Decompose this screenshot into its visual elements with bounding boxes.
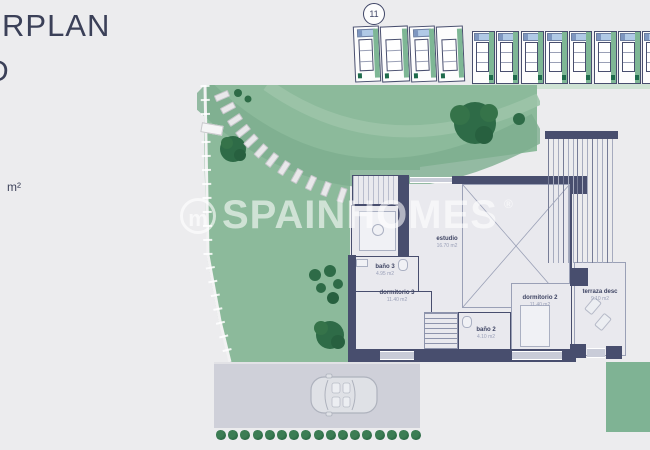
hedge-bush: [350, 430, 360, 440]
hedge-bush: [277, 430, 287, 440]
hedge-bush: [375, 430, 385, 440]
room-label-bano2: baño 2 4.10 m2: [466, 327, 506, 340]
terrace-pillar-br: [606, 346, 622, 359]
hedge-bush: [265, 430, 275, 440]
hedge-bush: [216, 430, 226, 440]
room-label-estudio: estudio 16.70 m2: [425, 236, 469, 249]
pergola-slat: [553, 139, 554, 263]
site-plot: [521, 31, 544, 84]
wall-left: [348, 255, 356, 362]
tree-left: [220, 136, 246, 162]
hedge-bush: [411, 430, 421, 440]
pergola-slat: [592, 139, 593, 263]
pergola-beam: [545, 131, 618, 139]
window-bottom-left: [380, 351, 414, 360]
hedge-bush: [301, 430, 311, 440]
hedge-bush: [338, 430, 348, 440]
covered-terrace-slats: [352, 175, 399, 205]
floorplan-page: RPLAN D m² 11: [0, 0, 650, 450]
wall-annex-right: [398, 175, 409, 260]
site-plot: [409, 25, 437, 82]
page-subtitle-fragment: D: [0, 55, 9, 89]
terrace-pillar-tl: [570, 268, 588, 286]
page-title: RPLAN: [2, 8, 110, 44]
car-top-view-icon: [308, 372, 380, 418]
pergola-slat: [558, 139, 559, 263]
driveway: [214, 362, 420, 428]
terrace-step: [587, 348, 605, 358]
room-label-dormitorio2: dormitorio 2 11.40 m2: [514, 295, 566, 308]
room-label-terraza: terraza desc 9.10 m2: [576, 289, 624, 302]
pergola-slat: [587, 139, 588, 263]
pergola-slat: [582, 139, 583, 263]
hedge-bush: [240, 430, 250, 440]
window-top-left: [410, 177, 452, 183]
site-plot: [545, 31, 568, 84]
staircase: [424, 312, 458, 354]
site-plot: [436, 25, 465, 82]
site-plot: [569, 31, 592, 84]
hedge-bush: [362, 430, 372, 440]
pergola-slat: [602, 139, 603, 263]
hedge-bush: [399, 430, 409, 440]
hedge-bush: [253, 430, 263, 440]
site-plot: [618, 31, 641, 84]
hedge-bush: [289, 430, 299, 440]
hedge-bush: [326, 430, 336, 440]
total-area-unit: m²: [7, 180, 21, 194]
terrace-pillar-bl: [570, 344, 586, 358]
pergola-slat: [597, 139, 598, 263]
room-label-dormitorio3: dormitorio 3 11.40 m2: [368, 290, 426, 303]
hedge-bush: [228, 430, 238, 440]
bed-icon: [520, 305, 550, 347]
wall-top-estudio: [452, 176, 572, 184]
pergola-slat: [577, 139, 578, 263]
site-plot: [353, 25, 381, 82]
hedge-bush: [314, 430, 324, 440]
washer-icon: [372, 224, 384, 236]
window-bottom-right: [512, 351, 562, 360]
room-label-bano3: baño 3 4.95 m2: [363, 264, 407, 277]
garden-patch-bottom-right: [606, 362, 650, 432]
hedge-bush: [387, 430, 397, 440]
lot-number-badge: 11: [363, 3, 385, 25]
site-plot: [472, 31, 495, 84]
pergola-slat: [612, 139, 613, 263]
pergola-slat: [607, 139, 608, 263]
site-plot: [594, 31, 617, 84]
site-plot: [496, 31, 519, 84]
pergola-slat: [548, 139, 549, 263]
pergola-slat: [573, 139, 574, 263]
site-plot: [642, 31, 650, 84]
pergola-slat: [568, 139, 569, 263]
site-plot: [380, 25, 410, 82]
pergola-slat: [563, 139, 564, 263]
